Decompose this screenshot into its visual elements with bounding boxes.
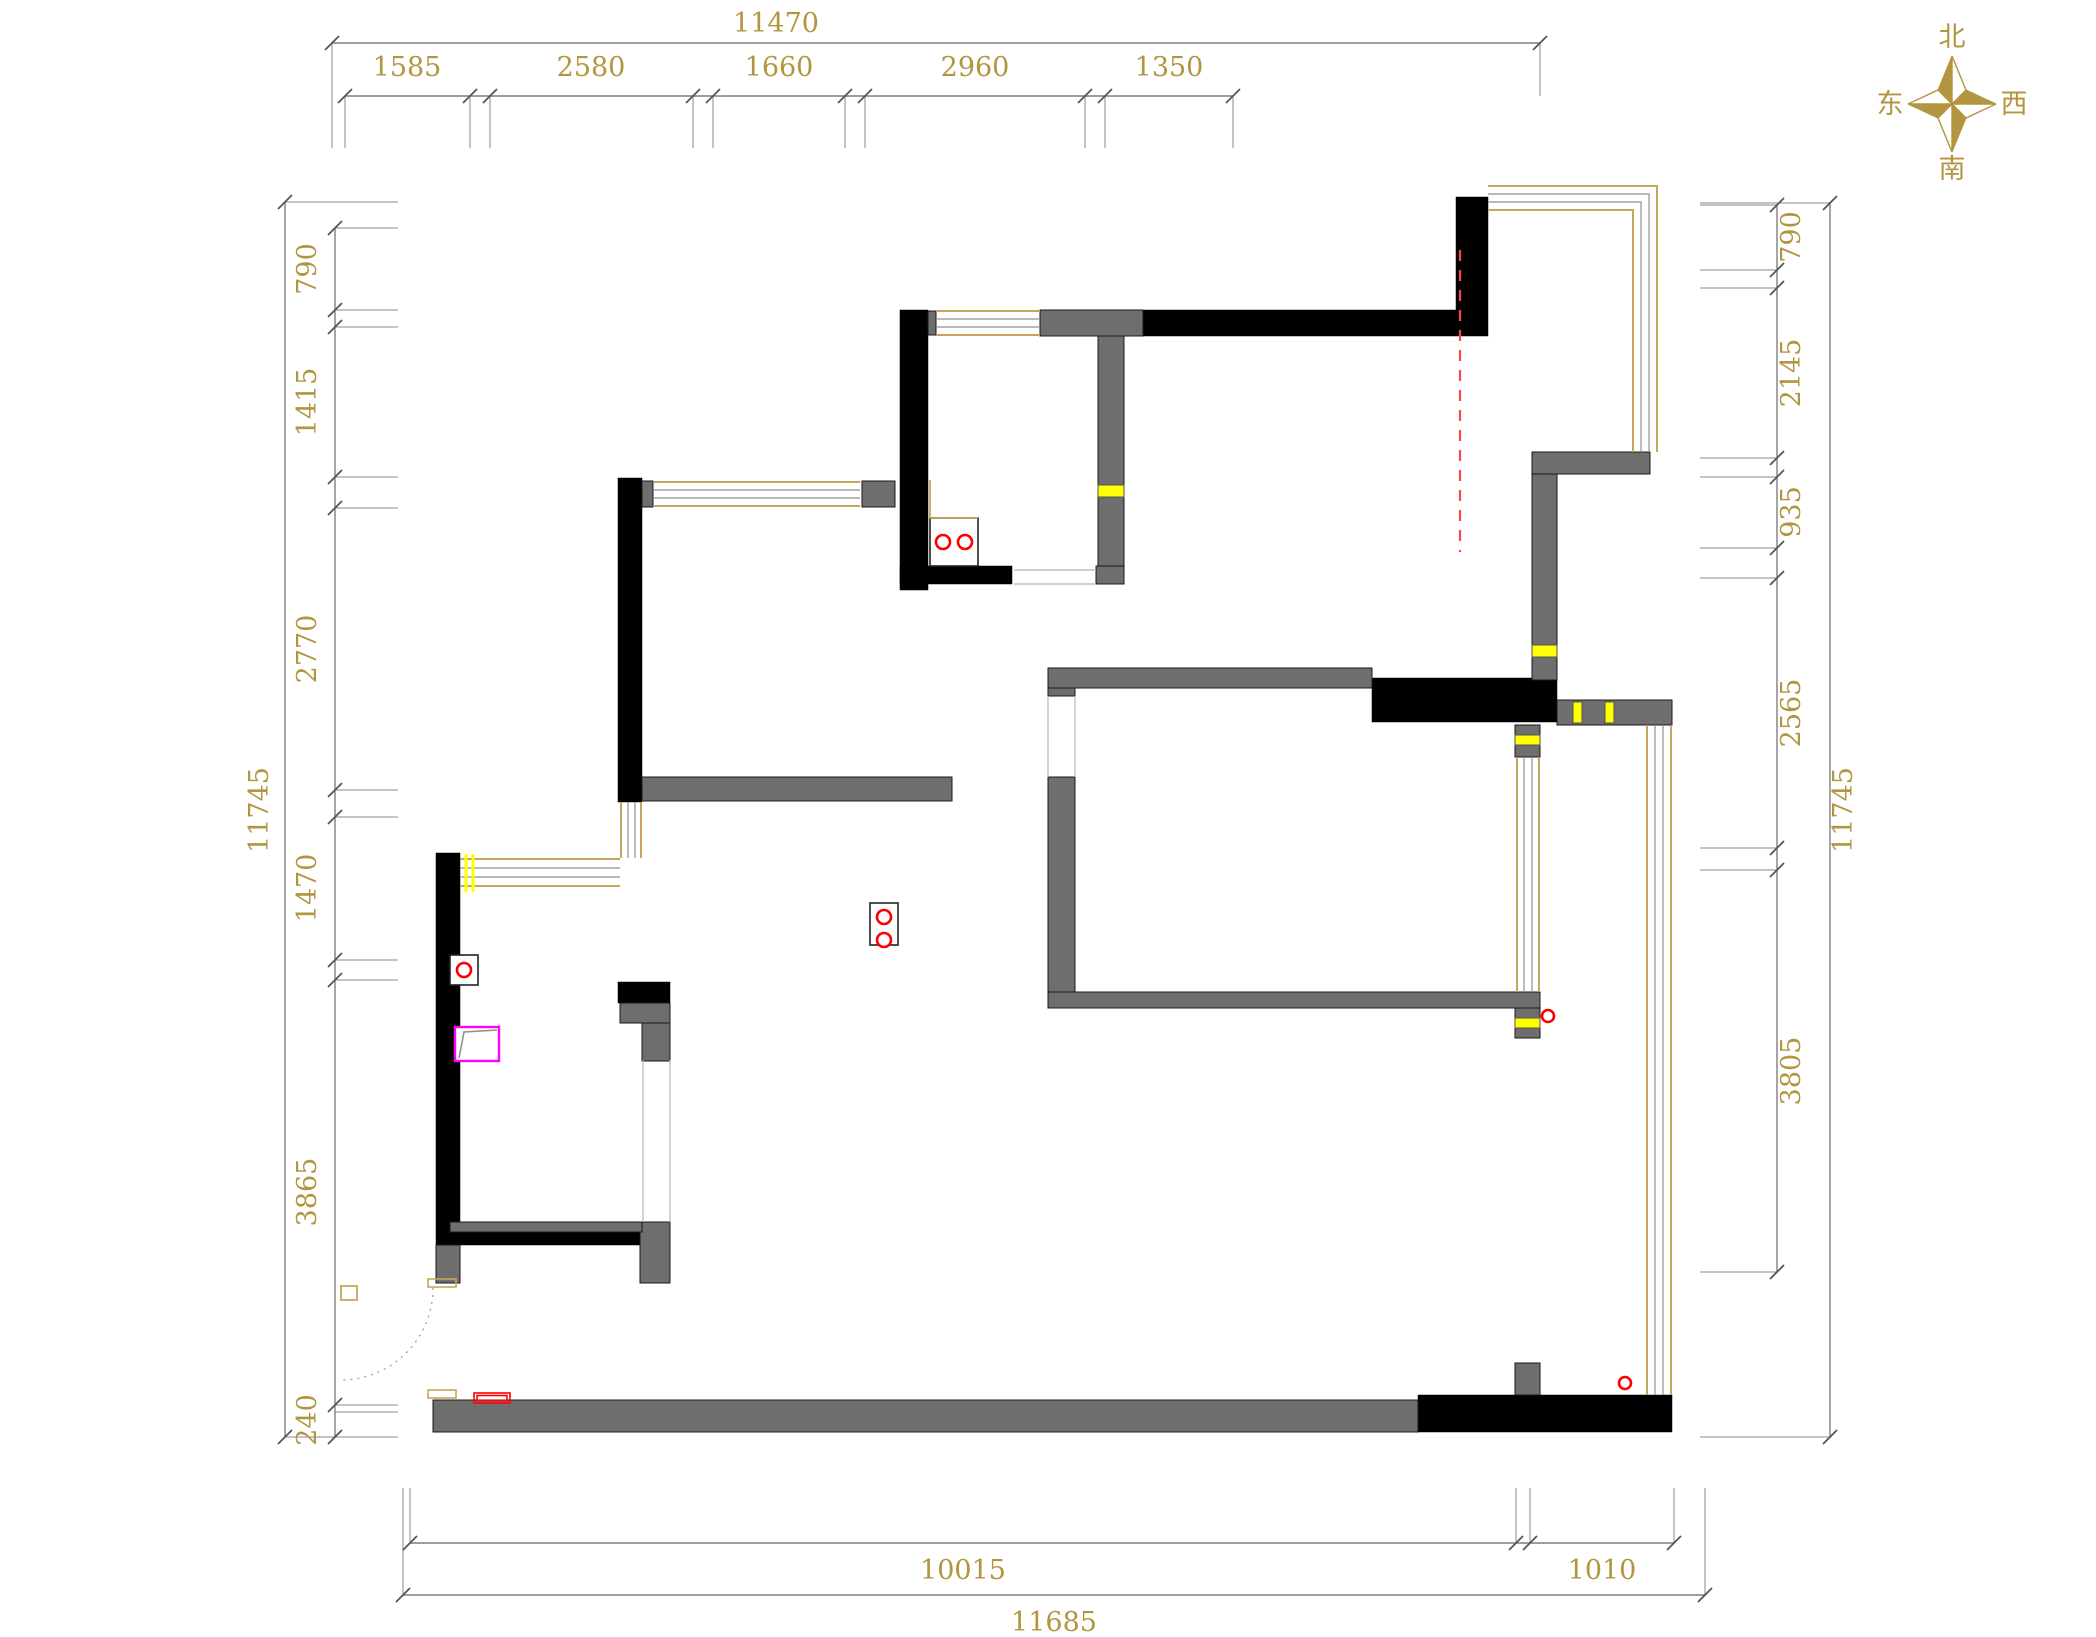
floor-plan-canvas: 11470 1585 2580 1660 2960 1350 790 <box>0 0 2096 1637</box>
dim-bottom-seg-2: 1010 <box>1568 1555 1637 1586</box>
dim-right-seg-5: 3805 <box>1776 1037 1807 1106</box>
wall-step-b <box>642 1023 670 1061</box>
door-frame-mark <box>428 1390 456 1398</box>
switch-mark <box>1573 702 1582 723</box>
dim-top-seg-4: 2960 <box>941 52 1010 83</box>
outlet-symbol <box>877 910 891 924</box>
window-bed2-right <box>1517 757 1539 992</box>
wall-bed2-left-b <box>1048 777 1075 992</box>
compass-north-label: 北 <box>1939 22 1966 53</box>
wall-top <box>1143 310 1456 336</box>
wall-hall-top <box>618 982 670 1003</box>
wall-study-bottom <box>642 777 952 801</box>
window-bed1-corner <box>621 802 641 858</box>
dim-right-total: 11745 <box>1828 767 1859 853</box>
jamb-study-window-left <box>642 481 653 507</box>
dim-left-seg-1: 790 <box>292 243 323 295</box>
dim-right-seg-3: 935 <box>1776 486 1807 538</box>
wall-kitchen-bottom <box>900 566 1012 584</box>
outlet-symbol <box>457 963 471 977</box>
compass-rose: 北 南 东 西 <box>1877 22 2028 185</box>
switch-mark <box>1605 702 1614 723</box>
bay-window-topright <box>1488 186 1657 452</box>
dim-top-seg-1: 1585 <box>373 52 442 83</box>
dim-left-seg-2: 1415 <box>292 368 323 437</box>
wall-kitchen-left <box>900 310 928 590</box>
left-dimensions: 790 1415 2770 1470 3865 240 11745 <box>244 195 398 1446</box>
dim-top-seg-3: 1660 <box>745 52 814 83</box>
dim-bottom-seg-1: 10015 <box>920 1555 1006 1586</box>
jamb-kitchen-window-left <box>928 311 936 335</box>
dim-right-seg-4: 2565 <box>1776 679 1807 748</box>
compass-south-label: 南 <box>1939 154 1966 185</box>
dim-top-total: 11470 <box>733 8 819 39</box>
wall-kitchen-corner <box>1096 566 1124 584</box>
right-dimensions: 790 2145 935 2565 3805 11745 <box>1700 196 1859 1444</box>
outlet-symbol <box>1619 1377 1631 1389</box>
window-right-tall <box>1647 725 1671 1395</box>
dim-left-seg-6: 240 <box>292 1394 323 1446</box>
dim-left-seg-4: 1470 <box>292 854 323 923</box>
wall-hall-bottom-gray <box>450 1222 642 1232</box>
jamb-study-window-right <box>862 481 895 507</box>
switch-mark <box>1515 1018 1540 1028</box>
wall-kitchen-right <box>1098 336 1124 566</box>
kitchen-counter <box>930 480 978 566</box>
wall-hall-stub <box>640 1222 670 1283</box>
dim-bottom-total: 11685 <box>1011 1607 1097 1637</box>
entry-cabinet <box>450 955 478 985</box>
outlet-symbol <box>936 535 950 549</box>
outlet-symbol <box>1542 1010 1554 1022</box>
door-arc <box>341 1288 433 1380</box>
bottom-dimensions: 10015 1010 11685 <box>396 1488 1712 1637</box>
wall-junction-block <box>1372 678 1557 722</box>
compass-east-label: 东 <box>1877 89 1904 120</box>
wall-study-left <box>618 478 642 802</box>
switch-mark <box>1515 735 1540 745</box>
floor-plan-page: 11470 1585 2580 1660 2960 1350 790 <box>0 0 2096 1637</box>
wall-step-a <box>620 1003 670 1023</box>
entry-door-swing <box>341 1279 456 1398</box>
window-study-top <box>653 482 860 506</box>
wall-living-top <box>1048 668 1372 688</box>
dim-top-seg-2: 2580 <box>557 52 626 83</box>
window-kitchen-top <box>936 311 1040 335</box>
outlet-symbol <box>877 933 891 947</box>
dim-left-seg-5: 3865 <box>292 1158 323 1227</box>
wall-west-gray <box>436 1245 460 1283</box>
compass-star-icon <box>1908 56 1996 152</box>
top-dimensions: 11470 1585 2580 1660 2960 1350 <box>325 8 1547 148</box>
dim-left-seg-3: 2770 <box>292 615 323 684</box>
outlet-symbol <box>958 535 972 549</box>
wall-hall-bottom <box>450 1232 642 1245</box>
compass-west-label: 西 <box>2001 89 2028 120</box>
switch-mark <box>1098 485 1124 497</box>
equipment-box <box>455 1027 499 1061</box>
dim-right-seg-1: 790 <box>1776 211 1807 263</box>
wall-bed2-left-a <box>1048 688 1075 696</box>
wall-bay-bottom <box>1532 452 1650 474</box>
wall-top-gray <box>1040 310 1143 336</box>
wall-bottom <box>433 1400 1418 1432</box>
living-cabinet <box>870 903 898 947</box>
wall-bed2-bottom <box>1048 992 1540 1008</box>
door-openings <box>643 570 1096 1222</box>
dim-top-seg-5: 1350 <box>1135 52 1204 83</box>
dim-right-seg-2: 2145 <box>1776 339 1807 408</box>
window-bed1-top <box>460 854 620 892</box>
dim-left-total: 11745 <box>244 767 275 853</box>
door-leaf-icon <box>341 1286 357 1300</box>
wall-bottom-right <box>1418 1395 1672 1432</box>
stub-bottom-wall <box>1515 1363 1540 1395</box>
switch-mark <box>1532 645 1557 657</box>
